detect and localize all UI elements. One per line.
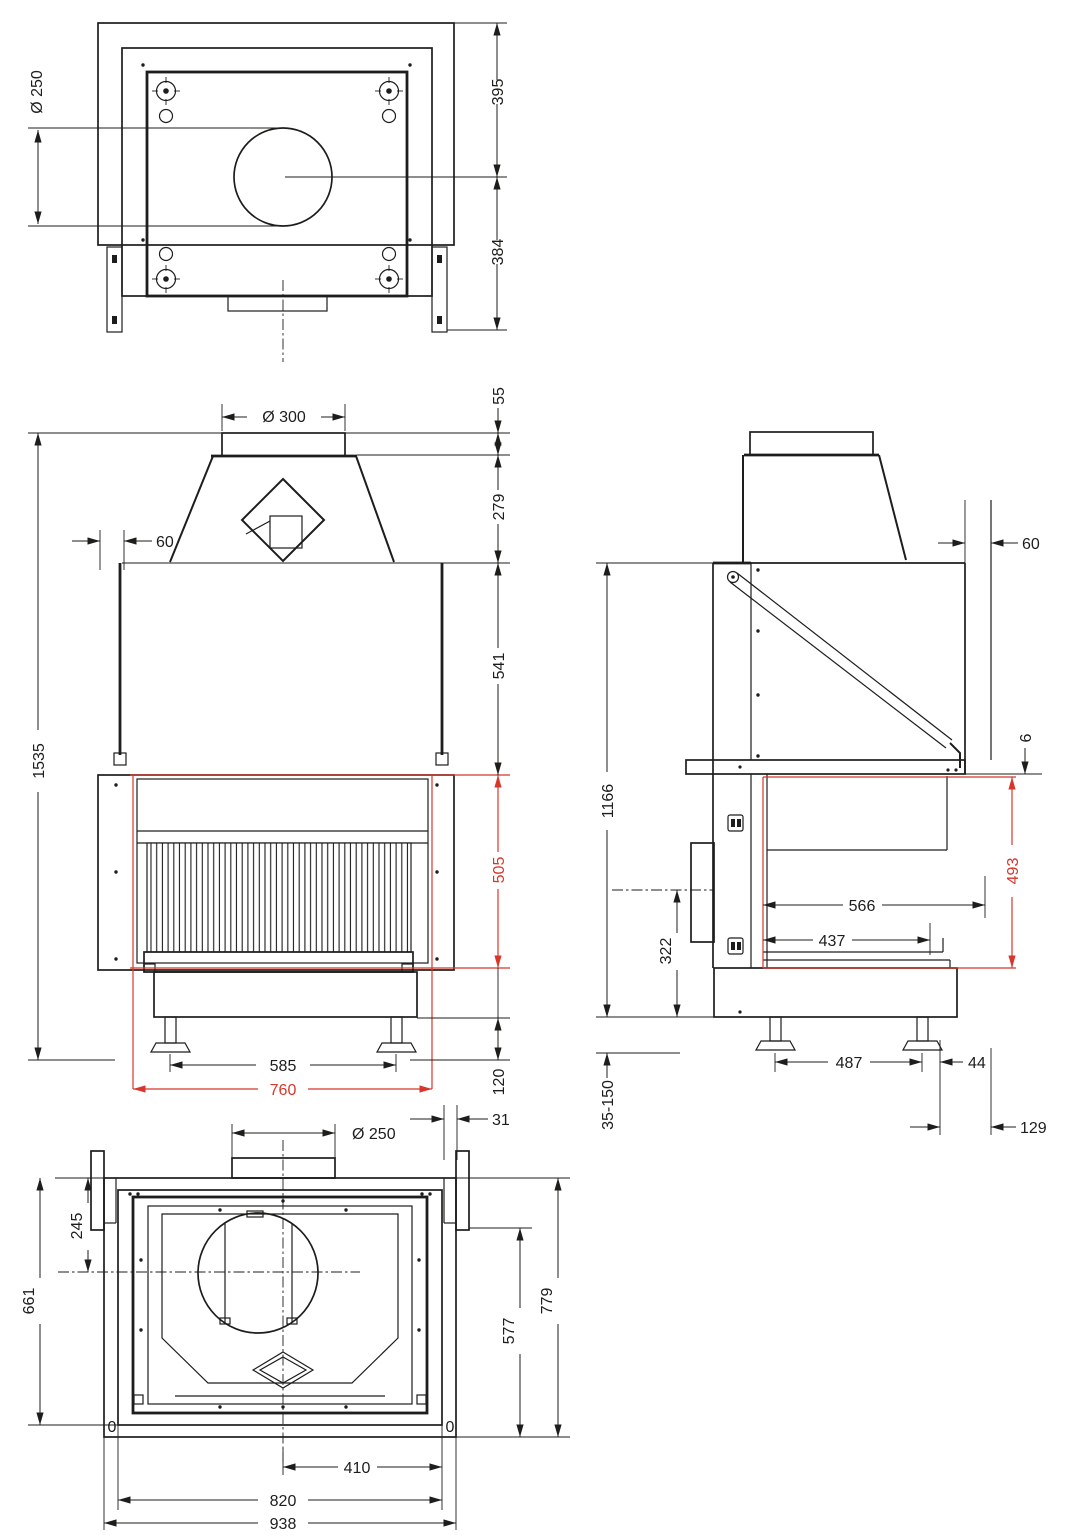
- base-plinth: [154, 972, 417, 1017]
- top-rear-stub: [228, 296, 327, 311]
- dim-bottom-779: 779: [456, 1178, 570, 1437]
- wall-panel-right: [456, 1151, 469, 1230]
- dim-label: 60: [1022, 536, 1040, 553]
- dim-label-541: 541: [491, 653, 508, 680]
- dim-label: 129: [1020, 1120, 1047, 1137]
- dim-front-dia300: Ø 300: [222, 404, 345, 431]
- convection-grille: [147, 843, 411, 952]
- dim-front-585: 585: [170, 1054, 396, 1075]
- mounting-bosses: [152, 77, 403, 293]
- dim-front-760: 760: [133, 1082, 432, 1099]
- side-column: [691, 563, 760, 968]
- side-bracket-right: [432, 247, 447, 332]
- zero-mark-left: 0: [108, 1419, 117, 1436]
- dim-label-55: 55: [491, 387, 508, 405]
- side-plinth: [714, 968, 957, 1017]
- side-collar: [750, 432, 873, 455]
- dim-label: 437: [819, 933, 846, 950]
- firebox-front: [98, 775, 454, 1017]
- dim-label: 1166: [600, 784, 617, 819]
- dim-label: Ø 250: [352, 1126, 396, 1143]
- dim-label: 44: [968, 1055, 986, 1072]
- dim-label: 35-150: [600, 1080, 617, 1130]
- dim-label: Ø 300: [262, 409, 306, 426]
- dim-label-279: 279: [491, 494, 508, 521]
- side-bench: [686, 760, 965, 774]
- drawing-page: Ø 250 395 384: [0, 0, 1068, 1538]
- dim-label: 245: [69, 1213, 86, 1240]
- dim-label: 487: [836, 1055, 863, 1072]
- dim-bottom-577: 577: [469, 1228, 532, 1437]
- dim-label: Ø 250: [29, 70, 46, 114]
- dim-side-322: 322: [612, 890, 714, 1017]
- front-body: [114, 563, 448, 765]
- dim-side-493: 493: [1005, 777, 1022, 968]
- dim-label: 31: [492, 1112, 510, 1129]
- dim-side-6: 6: [955, 733, 1042, 774]
- door-sill: [144, 952, 413, 972]
- dim-label: 577: [501, 1318, 518, 1345]
- dim-top-395: 395: [285, 23, 507, 177]
- bottom-door-frame: [133, 1197, 427, 1413]
- dim-side-60: 60: [938, 536, 1040, 553]
- dim-label: 566: [849, 898, 876, 915]
- dim-bottom-245: 245: [55, 1178, 104, 1272]
- damper-diamond: [242, 479, 324, 561]
- dim-label: 384: [490, 239, 507, 266]
- dim-top-384: 384: [447, 177, 507, 330]
- dim-front-60: 60: [72, 530, 174, 570]
- front-view: Ø 300 60 1535 55 279: [28, 387, 510, 1099]
- bottom-collar-stub: [232, 1158, 335, 1178]
- dim-label: 585: [270, 1058, 297, 1075]
- dim-top-dia250: Ø 250: [28, 70, 287, 226]
- bottom-view: Ø 250 31 245 661 577: [21, 1105, 570, 1533]
- dim-label-120: 120: [491, 1069, 508, 1096]
- dim-side-566: 566: [763, 876, 985, 918]
- dim-side-44: 44: [940, 1040, 986, 1135]
- flue-collar: [222, 433, 345, 456]
- zero-mark-right: 0: [446, 1419, 455, 1436]
- air-inlet-box: [691, 843, 714, 942]
- side-bracket-left: [107, 247, 122, 332]
- stay-rod: [728, 572, 961, 772]
- top-outer-plate: [98, 23, 454, 245]
- dim-label: 1535: [31, 743, 48, 779]
- bottom-screws: [128, 1192, 431, 1408]
- dim-side-1166: 1166: [596, 563, 714, 1017]
- side-opening-red: [763, 777, 1016, 968]
- top-casing-plate: [147, 72, 407, 296]
- top-view: Ø 250 395 384: [28, 23, 507, 362]
- dim-label: 820: [270, 1493, 297, 1510]
- dim-label: 322: [658, 938, 675, 965]
- dim-label: 410: [344, 1460, 371, 1477]
- wall-panel-left: [91, 1151, 104, 1230]
- dim-front-1535: 1535: [28, 433, 222, 1060]
- side-feet: [756, 1017, 942, 1050]
- bottom-flange: [118, 1190, 442, 1425]
- dim-label: 779: [539, 1288, 556, 1315]
- dim-label: 395: [490, 79, 507, 106]
- dim-bottom-dia250: Ø 250: [232, 1124, 396, 1158]
- dim-label: 493: [1005, 858, 1022, 885]
- side-view: 60 6 493 1166 322 566: [596, 432, 1047, 1137]
- front-feet: [151, 1017, 416, 1052]
- bottom-glass-line: [148, 1206, 412, 1404]
- dim-label-505: 505: [491, 857, 508, 884]
- dim-label: 661: [21, 1288, 38, 1315]
- firebox-liner-outline: [162, 1214, 398, 1383]
- dim-label: 60: [156, 534, 174, 551]
- dim-side-feet-35-150: 35-150: [596, 992, 680, 1130]
- dim-label: 6: [1018, 733, 1035, 742]
- drawing-canvas: Ø 250 395 384: [0, 0, 1068, 1538]
- dim-label: 760: [270, 1082, 297, 1099]
- dim-label: 938: [270, 1516, 297, 1533]
- dim-side-437: 437: [763, 923, 930, 955]
- dim-bottom-938: 938: [104, 1437, 456, 1533]
- dim-side-487: 487: [775, 1053, 922, 1072]
